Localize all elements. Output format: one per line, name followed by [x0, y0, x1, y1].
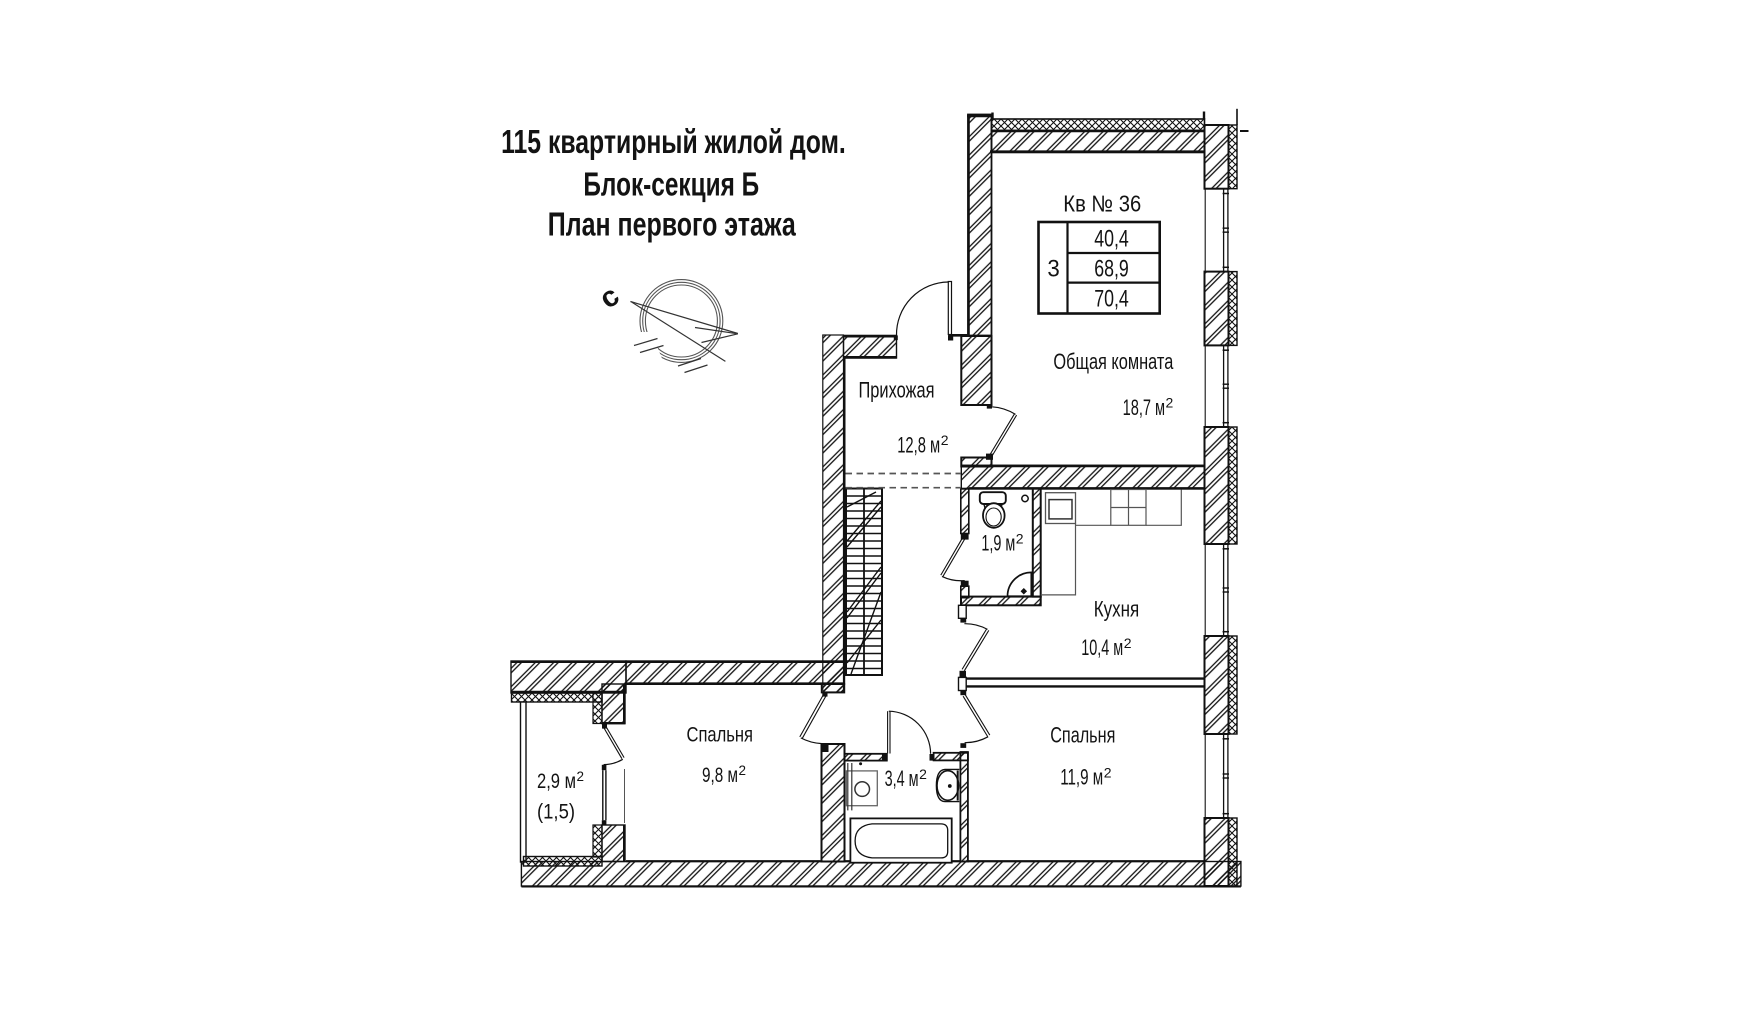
svg-text:Прихожая: Прихожая	[859, 378, 935, 403]
svg-text:2: 2	[739, 763, 747, 778]
svg-text:1,9 м: 1,9 м	[981, 531, 1015, 556]
svg-text:2: 2	[1016, 531, 1024, 547]
svg-text:10,4 м: 10,4 м	[1081, 635, 1123, 660]
svg-text:Кухня: Кухня	[1094, 597, 1140, 622]
svg-text:9,8 м: 9,8 м	[702, 764, 738, 787]
svg-text:2: 2	[1124, 635, 1132, 651]
svg-text:Спальня: Спальня	[1050, 723, 1115, 748]
svg-text:11,9 м: 11,9 м	[1060, 765, 1103, 790]
svg-text:Общая комната: Общая комната	[1053, 349, 1173, 374]
svg-text:2: 2	[941, 432, 949, 448]
svg-text:2: 2	[1166, 395, 1174, 411]
svg-text:План первого этажа: План первого этажа	[548, 206, 796, 243]
svg-text:68,9: 68,9	[1094, 255, 1129, 282]
svg-text:2: 2	[577, 769, 585, 784]
svg-text:Спальня: Спальня	[687, 724, 754, 747]
svg-text:18,7 м: 18,7 м	[1123, 395, 1166, 420]
svg-text:40,4: 40,4	[1094, 226, 1129, 253]
svg-text:12,8 м: 12,8 м	[897, 433, 940, 458]
svg-text:Кв № 36: Кв № 36	[1063, 191, 1141, 217]
svg-text:(1,5): (1,5)	[537, 801, 575, 824]
svg-text:2,9 м: 2,9 м	[537, 770, 576, 793]
svg-text:3: 3	[1047, 255, 1059, 282]
svg-text:3,4 м: 3,4 м	[885, 766, 919, 791]
svg-text:Блок-секция Б: Блок-секция Б	[583, 166, 759, 203]
svg-text:70,4: 70,4	[1094, 286, 1129, 313]
svg-text:2: 2	[919, 766, 927, 782]
svg-text:2: 2	[1104, 765, 1112, 781]
svg-text:115 квартирный жилой дом.: 115 квартирный жилой дом.	[501, 123, 846, 160]
